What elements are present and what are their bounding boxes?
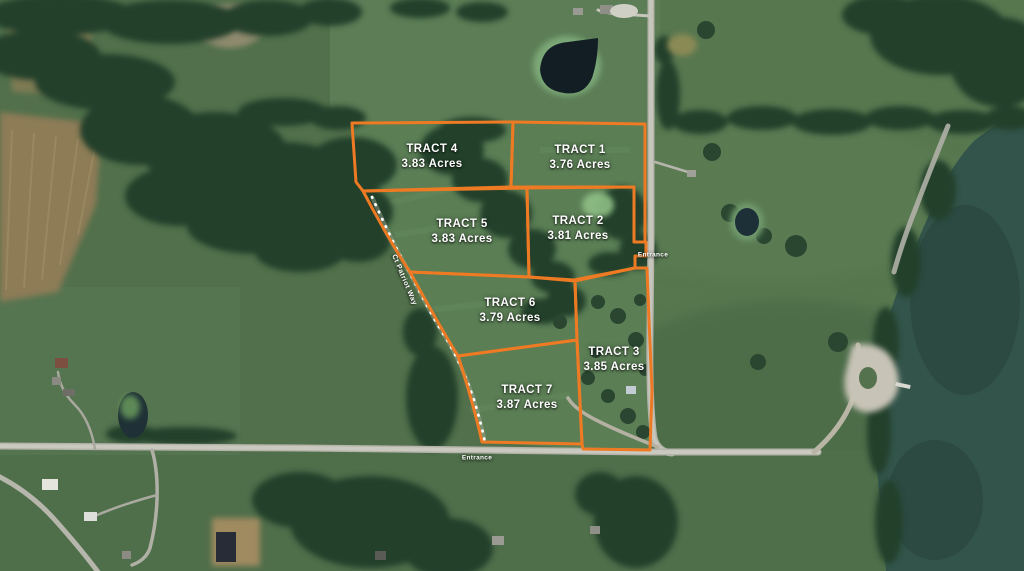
- aerial-plat-map: TRACT 1 3.76 Acres TRACT 2 3.81 Acres TR…: [0, 0, 1024, 571]
- satellite-imagery: [0, 0, 1024, 571]
